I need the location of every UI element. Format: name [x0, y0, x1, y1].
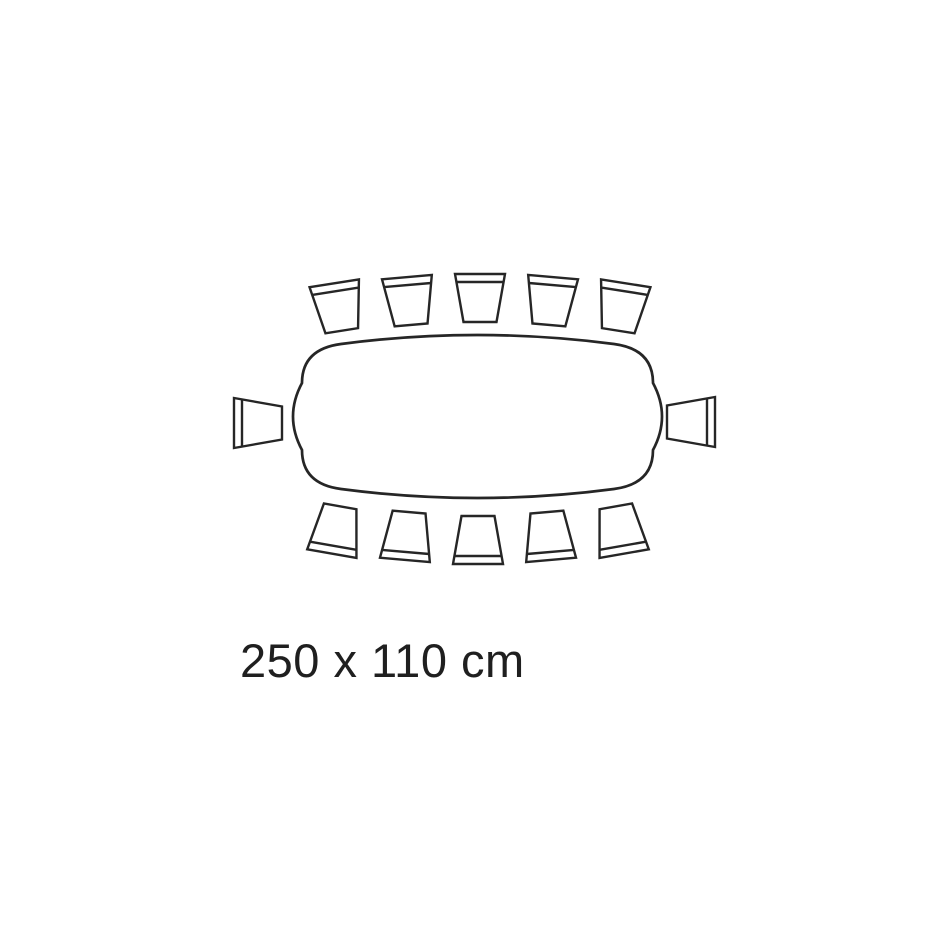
chair-bottom-5 [591, 502, 649, 558]
chair-top-2 [382, 275, 436, 327]
chair-top-4 [524, 275, 578, 327]
canvas: 250 x 110 cm [0, 0, 950, 950]
chair-left [234, 398, 282, 448]
table-outline [293, 335, 662, 498]
chair-bottom-2 [380, 510, 434, 562]
chair-top-1 [310, 279, 367, 334]
chair-top-3 [455, 274, 505, 322]
chair-right [667, 397, 715, 447]
chair-top-5 [594, 279, 651, 334]
chair-bottom-4 [522, 510, 576, 562]
size-label: 250 x 110 cm [240, 633, 525, 688]
chair-bottom-1 [307, 502, 365, 558]
chair-bottom-3 [453, 516, 503, 564]
seating-diagram [0, 0, 950, 950]
